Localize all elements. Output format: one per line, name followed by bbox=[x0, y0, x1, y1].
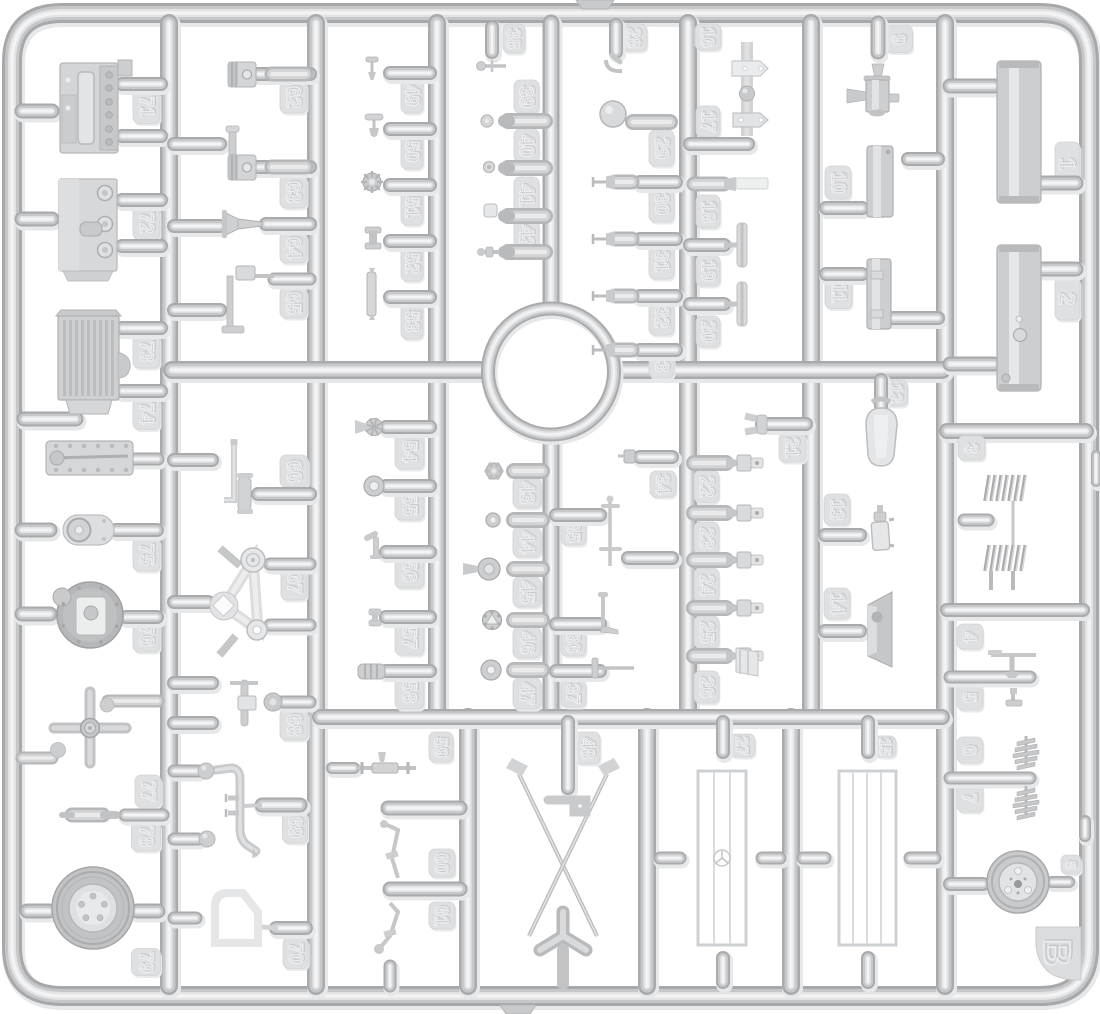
svg-text:41: 41 bbox=[515, 185, 537, 207]
svg-text:45: 45 bbox=[515, 582, 537, 604]
svg-text:70: 70 bbox=[284, 943, 305, 964]
svg-text:8: 8 bbox=[1062, 861, 1079, 869]
svg-text:47: 47 bbox=[515, 683, 537, 705]
svg-text:32: 32 bbox=[650, 307, 671, 328]
svg-text:22: 22 bbox=[695, 477, 716, 498]
svg-text:38: 38 bbox=[503, 29, 523, 49]
svg-text:2: 2 bbox=[1054, 293, 1079, 305]
svg-text:78: 78 bbox=[135, 826, 156, 847]
svg-text:19: 19 bbox=[697, 261, 718, 282]
svg-text:54: 54 bbox=[398, 441, 420, 464]
svg-text:23: 23 bbox=[695, 528, 716, 549]
svg-text:53: 53 bbox=[401, 311, 422, 332]
svg-text:49: 49 bbox=[401, 85, 422, 106]
svg-text:30: 30 bbox=[650, 194, 671, 215]
svg-text:79: 79 bbox=[135, 952, 156, 973]
svg-text:59: 59 bbox=[430, 738, 450, 758]
svg-text:6: 6 bbox=[959, 746, 979, 756]
svg-text:57: 57 bbox=[398, 627, 420, 649]
svg-text:56: 56 bbox=[398, 560, 420, 582]
svg-text:4: 4 bbox=[959, 632, 979, 642]
svg-text:25: 25 bbox=[695, 622, 716, 644]
svg-text:24: 24 bbox=[695, 575, 716, 597]
svg-text:B: B bbox=[1035, 939, 1077, 966]
svg-text:11: 11 bbox=[827, 283, 848, 304]
svg-text:43: 43 bbox=[515, 482, 537, 504]
svg-text:76: 76 bbox=[135, 625, 157, 647]
svg-text:1: 1 bbox=[1054, 158, 1079, 170]
svg-text:39: 39 bbox=[515, 86, 537, 108]
svg-text:64: 64 bbox=[282, 237, 304, 260]
svg-text:50: 50 bbox=[401, 141, 422, 162]
svg-text:26: 26 bbox=[695, 677, 716, 698]
svg-text:52: 52 bbox=[401, 253, 422, 274]
svg-text:36: 36 bbox=[563, 633, 583, 653]
svg-text:61: 61 bbox=[431, 906, 451, 926]
svg-text:71: 71 bbox=[135, 97, 156, 119]
svg-text:55: 55 bbox=[398, 494, 420, 516]
svg-text:67: 67 bbox=[283, 573, 304, 594]
svg-text:65: 65 bbox=[282, 292, 304, 314]
svg-text:48: 48 bbox=[576, 738, 597, 759]
svg-text:72: 72 bbox=[135, 213, 156, 234]
svg-text:34: 34 bbox=[652, 475, 672, 495]
svg-text:9: 9 bbox=[888, 35, 908, 45]
svg-text:75: 75 bbox=[135, 544, 157, 566]
svg-text:5: 5 bbox=[959, 693, 979, 703]
svg-text:62: 62 bbox=[282, 86, 304, 108]
svg-text:46: 46 bbox=[515, 632, 537, 654]
svg-text:73: 73 bbox=[135, 341, 156, 362]
svg-text:29: 29 bbox=[650, 138, 671, 159]
svg-text:68: 68 bbox=[282, 714, 304, 736]
svg-text:66: 66 bbox=[282, 461, 304, 483]
svg-text:16: 16 bbox=[697, 28, 717, 48]
svg-text:31: 31 bbox=[650, 251, 671, 273]
svg-text:15: 15 bbox=[876, 738, 893, 756]
svg-text:63: 63 bbox=[282, 181, 304, 203]
svg-text:77: 77 bbox=[137, 781, 158, 802]
svg-text:27: 27 bbox=[732, 737, 751, 756]
svg-text:3: 3 bbox=[961, 444, 981, 454]
svg-text:60: 60 bbox=[431, 854, 451, 874]
svg-text:74: 74 bbox=[135, 403, 156, 425]
svg-text:58: 58 bbox=[398, 681, 420, 703]
svg-text:14: 14 bbox=[826, 594, 847, 616]
svg-text:40: 40 bbox=[515, 135, 537, 157]
svg-text:7: 7 bbox=[959, 794, 979, 804]
svg-text:28: 28 bbox=[623, 28, 643, 48]
svg-text:44: 44 bbox=[515, 532, 537, 555]
svg-text:17: 17 bbox=[697, 112, 718, 133]
svg-text:20: 20 bbox=[697, 322, 718, 343]
svg-text:37: 37 bbox=[563, 684, 583, 704]
svg-text:18: 18 bbox=[697, 202, 718, 223]
svg-text:69: 69 bbox=[284, 817, 305, 838]
svg-text:10: 10 bbox=[827, 173, 848, 194]
svg-text:21: 21 bbox=[782, 438, 802, 458]
svg-text:13: 13 bbox=[826, 500, 847, 521]
svg-text:51: 51 bbox=[401, 197, 422, 219]
